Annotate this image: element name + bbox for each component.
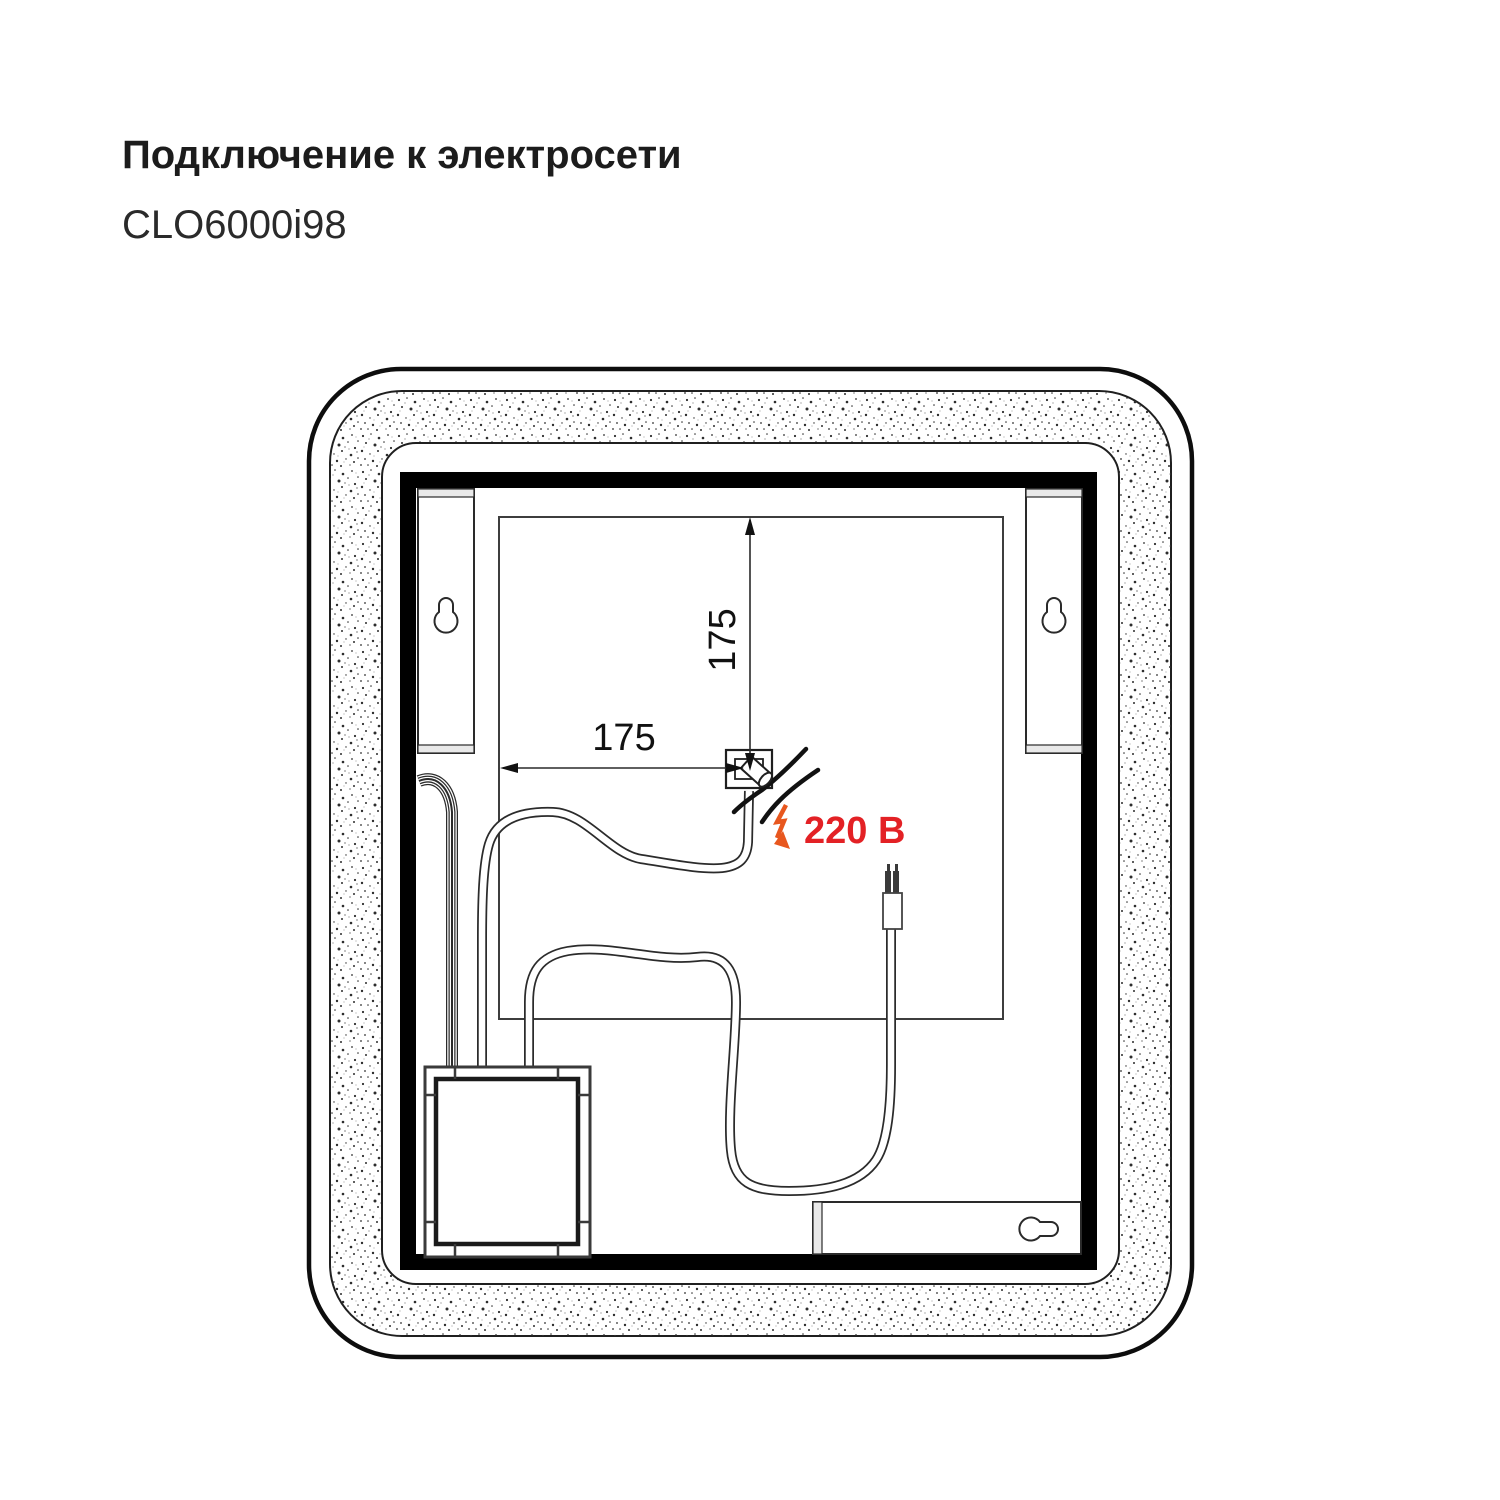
- dimension-label-vertical: 175: [702, 608, 744, 671]
- dimension-vertical: 175: [702, 517, 755, 771]
- wiring-diagram: 175 175 220 В: [0, 0, 1500, 1500]
- dimension-label-horizontal: 175: [592, 717, 655, 759]
- ribbon-cable: [419, 779, 452, 1070]
- mounting-bracket-left: [418, 489, 474, 753]
- wire-connector-end: [883, 864, 902, 929]
- mounting-bracket-right: [1026, 489, 1082, 753]
- voltage-label: 220 В: [804, 810, 905, 852]
- cable-junction-to-driver: [482, 791, 749, 1070]
- lightning-arrow-icon: [774, 805, 790, 849]
- page: Подключение к электросети CLO6000i98: [0, 0, 1500, 1500]
- dimension-horizontal: 175: [500, 717, 744, 773]
- voltage-callout: 220 В: [774, 805, 905, 852]
- arrow-left-icon: [500, 763, 518, 773]
- arrow-up-icon: [745, 517, 755, 535]
- led-driver-box: [425, 1067, 590, 1257]
- mounting-bracket-bottom: [813, 1202, 1081, 1254]
